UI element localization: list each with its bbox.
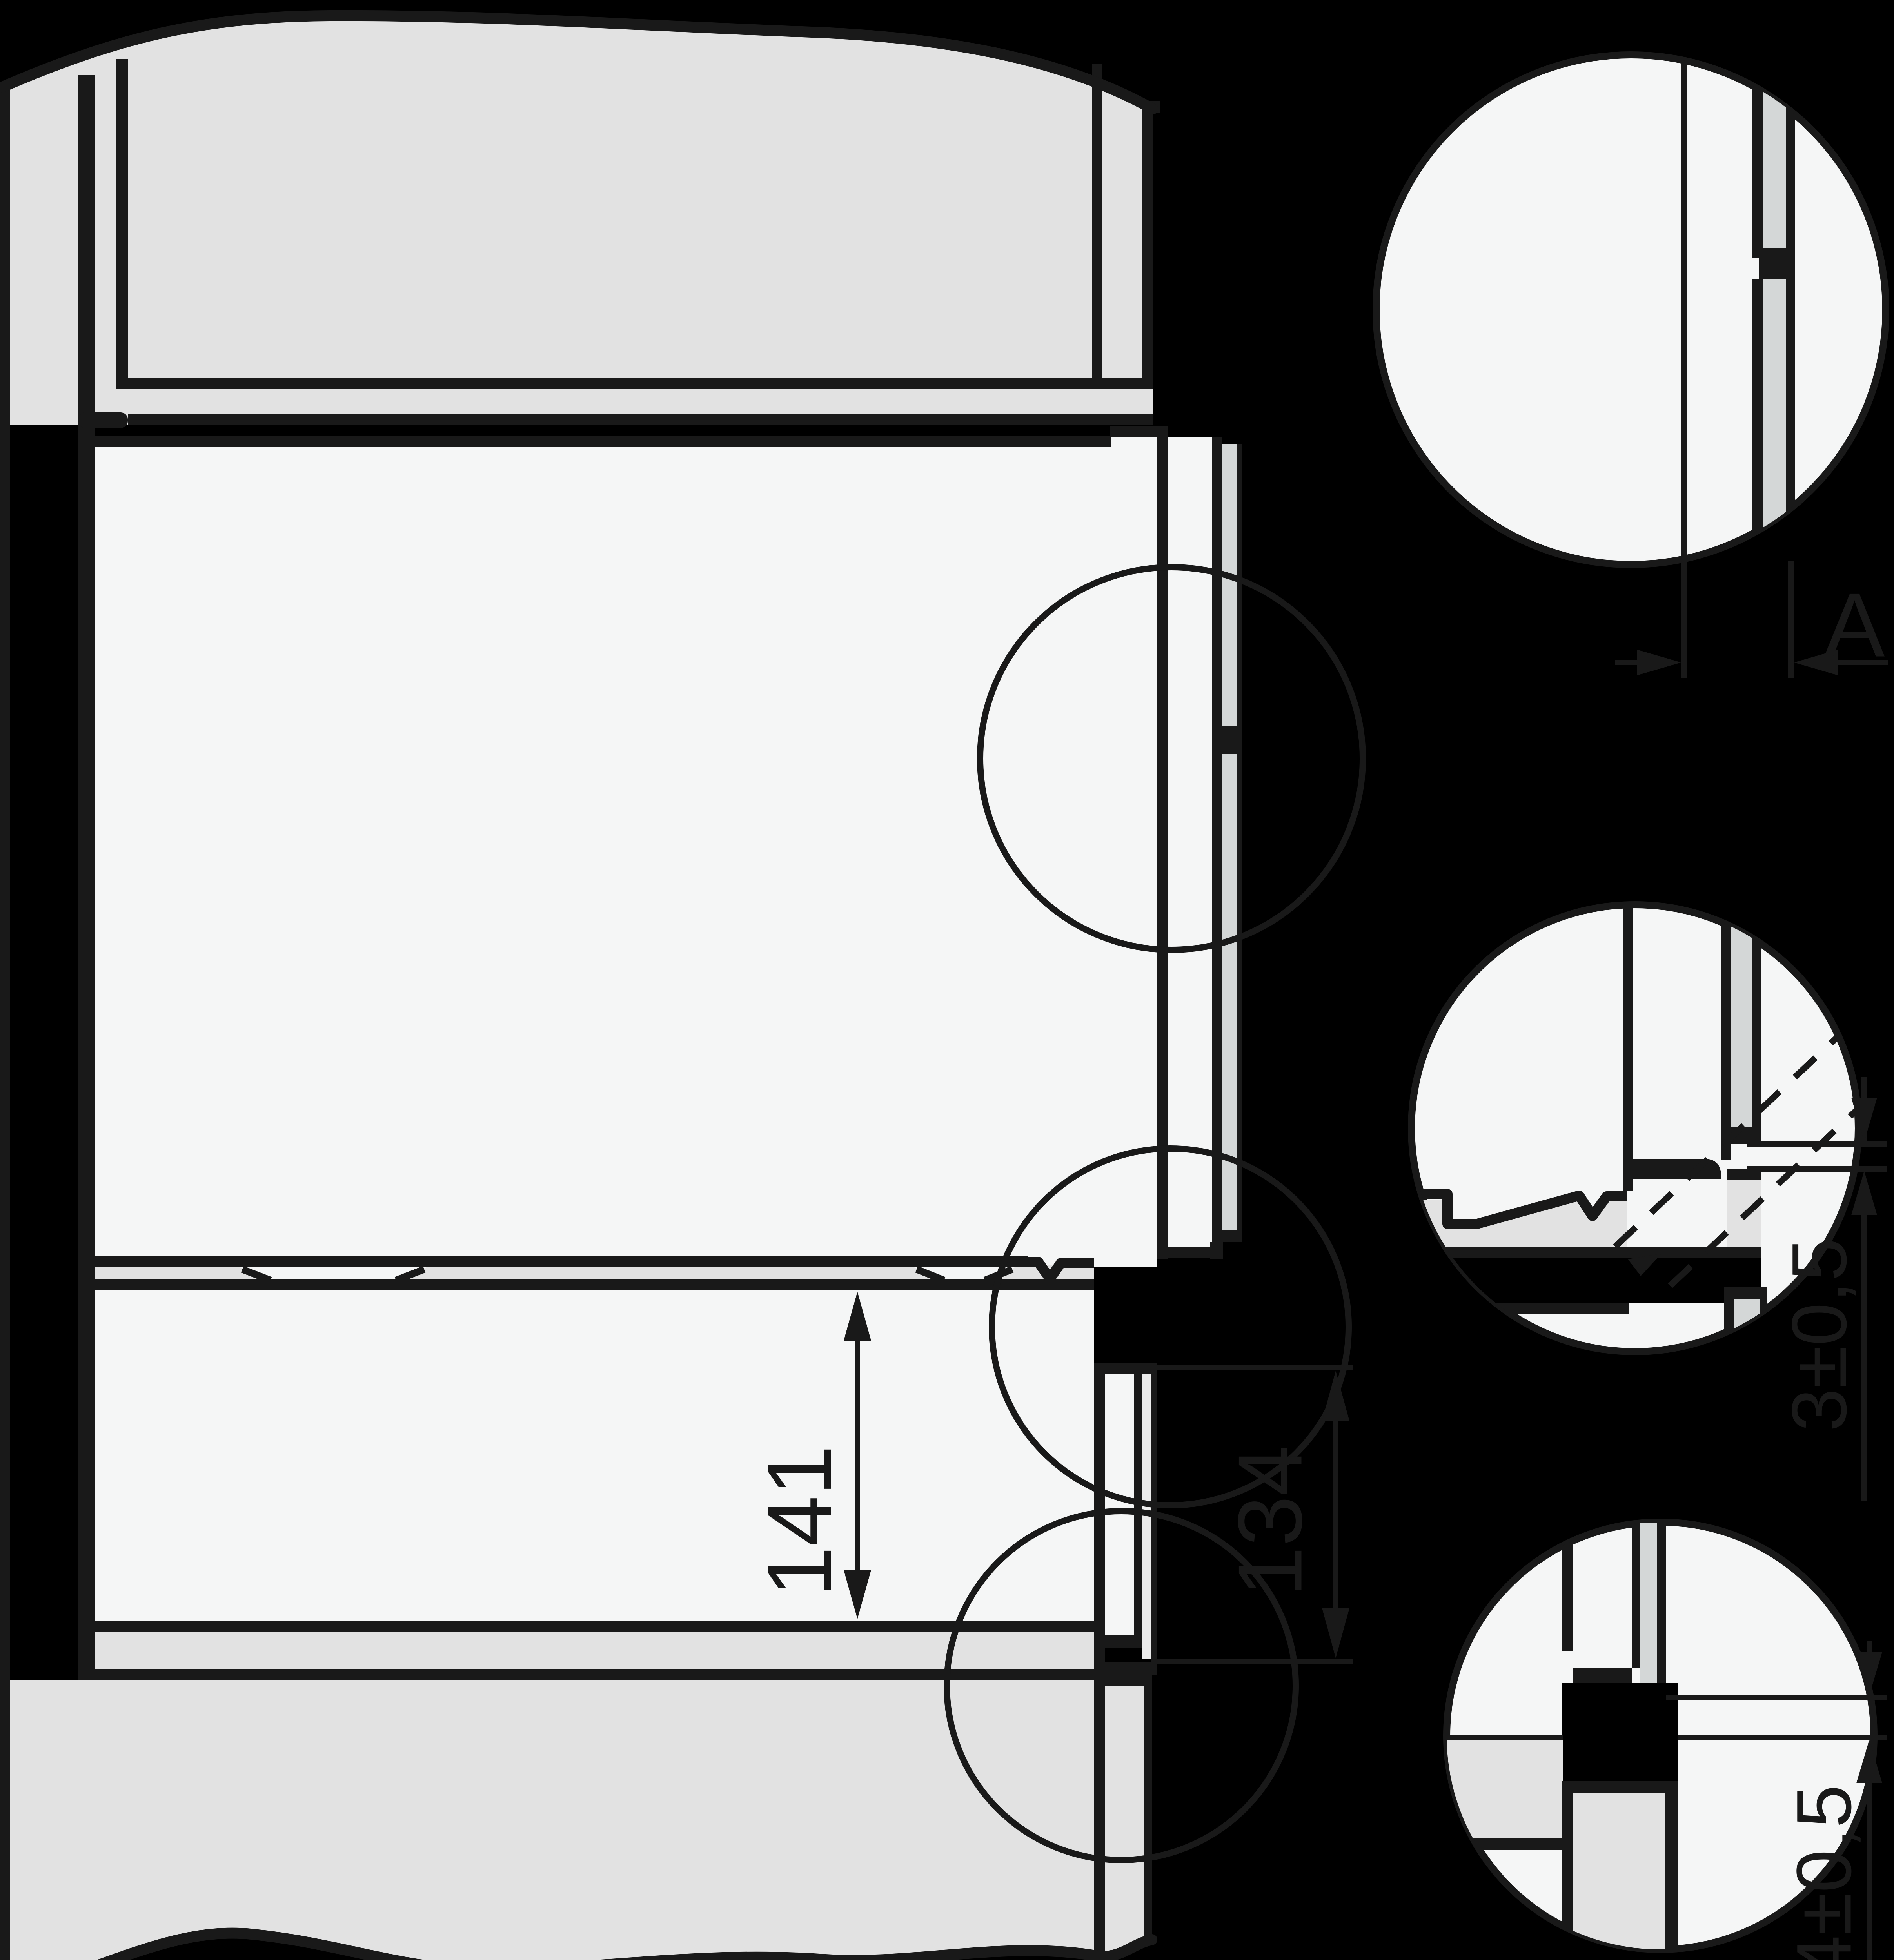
top-cabinet-body (5, 16, 1153, 425)
installation-diagram: 141 134 (0, 0, 1894, 1960)
tolerance-mid-label: 3±0,5 (1776, 1238, 1863, 1432)
front-height-label: 134 (1220, 1445, 1321, 1597)
upper-niche-interior (95, 436, 1157, 1267)
niche-ceiling-line (95, 436, 1111, 447)
left-wall-line (78, 75, 95, 1680)
left-strip-line (116, 59, 128, 389)
strip-bottom-cap (78, 412, 128, 428)
tolerance-bottom-label: 4±0,5 (1781, 1785, 1867, 1960)
floor-band (95, 1632, 1094, 1669)
shelf-bottom-line (128, 414, 1153, 425)
shelf-top-line (128, 378, 1153, 389)
upper-appliance-front (1157, 426, 1242, 1259)
niche-height-label: 141 (749, 1445, 851, 1597)
divider-top-line (95, 1256, 1028, 1267)
left-outer-edge (0, 85, 10, 1960)
drawing-stage: 141 134 (0, 0, 1894, 1960)
bottom-cabinet-body (5, 1674, 1152, 1960)
top-box-front-face (1142, 102, 1153, 389)
floor-top-line (95, 1621, 1094, 1632)
lower-niche-interior (95, 1290, 1094, 1621)
detail-gap-label: A (1824, 575, 1885, 676)
detail-circle-top (1376, 55, 1886, 564)
divider-bottom-line (95, 1279, 1094, 1290)
